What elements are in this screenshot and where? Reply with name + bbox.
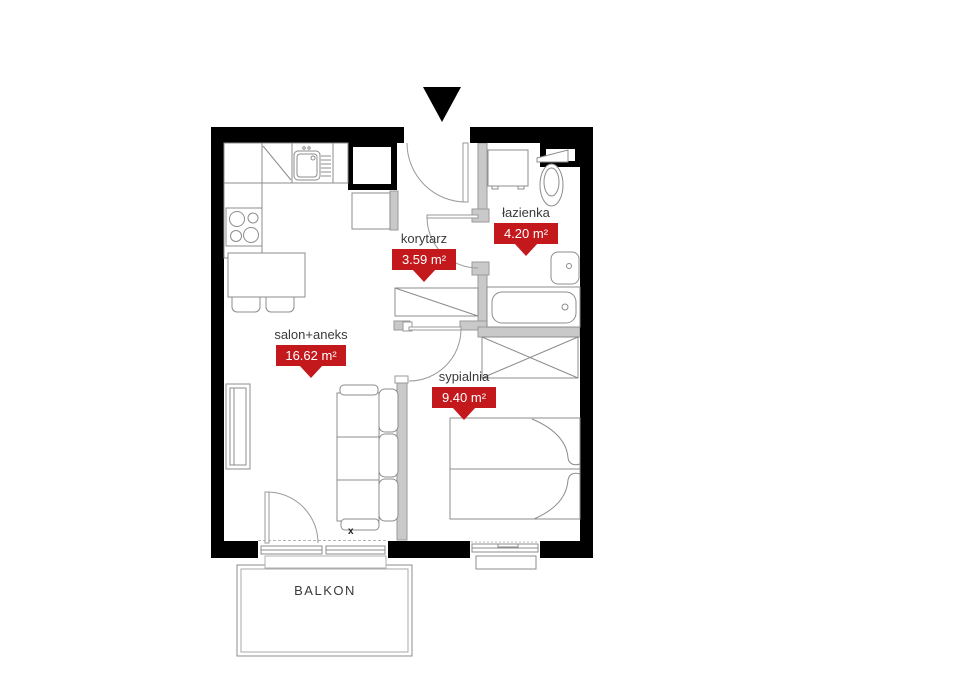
bedroom-window: [471, 542, 539, 569]
washing-machine-icon: [488, 150, 528, 189]
balcony-door-swing: [267, 492, 318, 543]
room-label-sypialnia: sypialnia: [399, 369, 529, 384]
washbasin-icon: [551, 252, 579, 284]
double-bed-icon: [450, 418, 580, 519]
room-area-badge-sypialnia: 9.40 m²: [432, 387, 496, 408]
floorplan-canvas: salon+aneks 16.62 m² korytarz 3.59 m² ła…: [0, 0, 955, 688]
wall-bottom-right: [540, 541, 593, 558]
wall-top-left: [211, 127, 404, 143]
room-area-badge-lazienka: 4.20 m²: [494, 223, 558, 244]
room-tag-sypialnia: sypialnia 9.40 m²: [399, 369, 529, 420]
floorplan-drawing: [0, 0, 955, 688]
sofa-icon: [337, 385, 398, 530]
dining-set: [228, 253, 305, 312]
hall-cabinet: [352, 193, 390, 229]
entrance-door-swing: [407, 143, 466, 202]
room-area-badge-salon: 16.62 m²: [276, 345, 345, 366]
entrance-opening: [404, 127, 470, 143]
balcony-threshold: [265, 556, 386, 568]
badge-arrow: [412, 269, 436, 282]
room-label-salon: salon+aneks: [246, 327, 376, 342]
entrance-arrow-icon: [423, 87, 461, 122]
bathtub-icon: [487, 287, 580, 327]
shaft-hole: [353, 147, 391, 184]
wall-bottom-left: [211, 541, 258, 558]
room-tag-salon: salon+aneks 16.62 m²: [246, 327, 376, 378]
tv-cabinet: [226, 384, 250, 469]
dining-table: [228, 253, 305, 297]
wall-top-right: [470, 127, 593, 143]
wall-kitchen-corridor: [390, 191, 398, 230]
toilet-icon: [537, 150, 568, 206]
room-label-lazienka: łazienka: [461, 205, 591, 220]
wall-left: [211, 127, 224, 558]
window-x-marker: x: [348, 526, 354, 537]
badge-arrow: [299, 365, 323, 378]
badge-arrow: [452, 407, 476, 420]
badge-arrow: [514, 243, 538, 256]
balcony-label: BALKON: [265, 583, 385, 598]
entrance-door-leaf: [463, 143, 468, 202]
wall-right: [580, 127, 593, 558]
balcony-door-leaf: [265, 492, 269, 543]
bedroom-door-leaf: [409, 327, 461, 330]
room-tag-lazienka: łazienka 4.20 m²: [461, 205, 591, 256]
window-sill: [476, 556, 536, 569]
wall-bathroom-upper: [478, 143, 487, 209]
wall-bottom-middle: [388, 541, 470, 558]
balcony-outline: [237, 556, 412, 656]
hall-wardrobe: [395, 288, 478, 316]
stove-icon: [226, 208, 262, 246]
room-area-badge-korytarz: 3.59 m²: [392, 249, 456, 270]
wall-bathroom-bedroom: [478, 327, 580, 337]
